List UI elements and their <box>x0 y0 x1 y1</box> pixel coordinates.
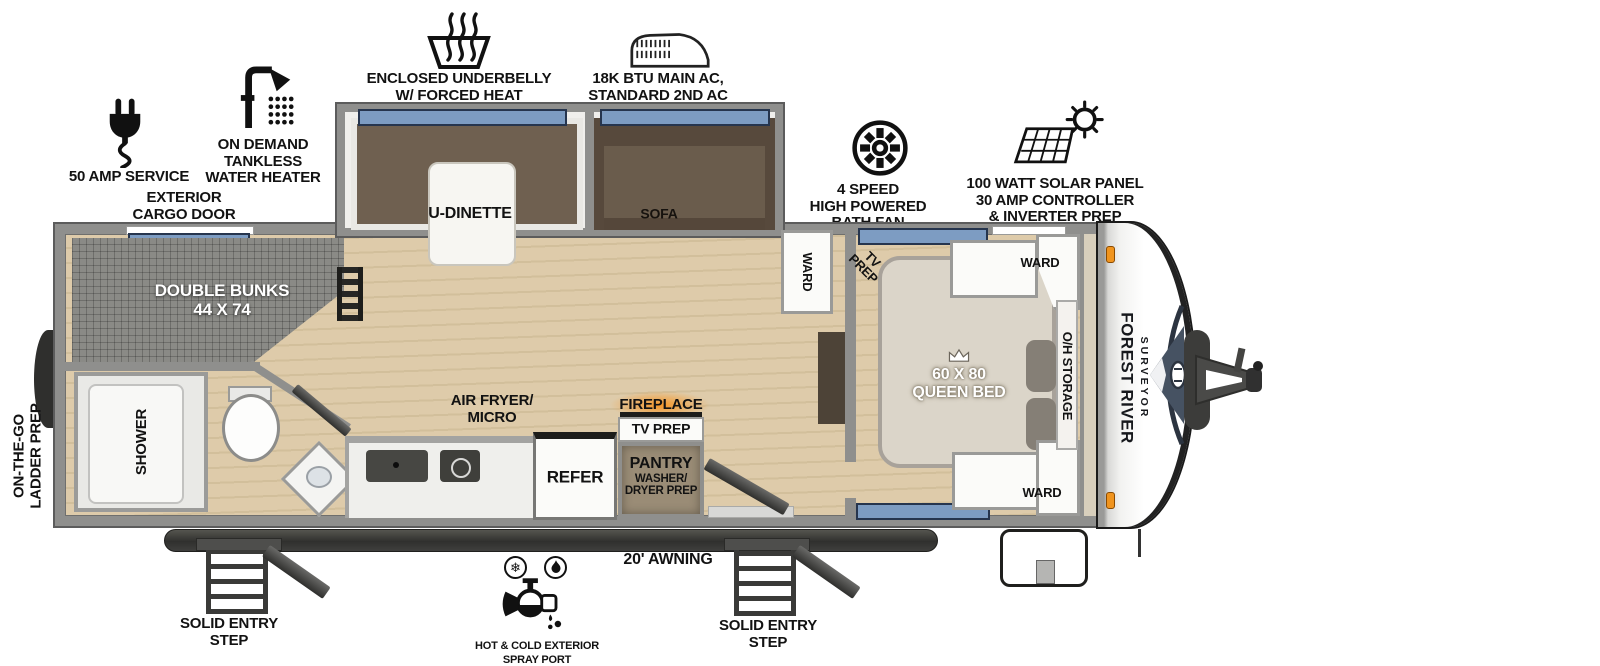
solar-panel-icon <box>1012 100 1104 174</box>
cooktop-burner <box>451 458 471 478</box>
hot-icon <box>544 556 567 579</box>
cap-support-line <box>1138 529 1141 557</box>
callout-water-heater-label: ON DEMAND TANKLESS WATER HEATER <box>183 137 343 187</box>
bath-fan-icon <box>851 119 909 177</box>
crown-icon <box>946 348 972 364</box>
bedroom-cabinet-bottom <box>952 452 1040 510</box>
ac-unit-icon <box>626 29 714 69</box>
ward-bed-bottom <box>1036 440 1080 516</box>
tv-panel <box>818 332 846 424</box>
bathroom-sink-basin <box>306 466 332 488</box>
fireplace-label: FIREPLACE <box>619 397 702 414</box>
tv-prep-main-label: TV PREP <box>632 421 691 436</box>
entry-steps-right <box>734 550 796 616</box>
entry-step-left-label: SOLID ENTRY STEP <box>149 616 309 649</box>
slideout-divider-wall <box>585 112 594 232</box>
floorplan-diagram: 50 AMP SERVICE ON DEMAND TANKLESS WATER … <box>0 0 1600 666</box>
callout-ac-label: 18K BTU MAIN AC, STANDARD 2ND AC <box>558 71 758 104</box>
dinette-window <box>358 109 567 126</box>
entry-steps-left <box>206 550 268 614</box>
toilet <box>222 394 280 462</box>
forced-heat-icon <box>424 0 494 70</box>
front-wall-marking <box>992 226 1066 235</box>
callout-solar-label: 100 WATT SOLAR PANEL 30 AMP CONTROLLER &… <box>955 176 1155 226</box>
brand-make-label: FOREST RIVER <box>1117 312 1136 444</box>
sofa-front-edge <box>604 218 765 230</box>
spray-port-icon <box>496 578 576 630</box>
air-fryer-label: AIR FRYER/ MICRO <box>412 393 572 426</box>
ward-hall-label: WARD <box>800 253 814 292</box>
cold-icon: ❄ <box>504 556 527 579</box>
bunk-ladder <box>337 267 363 321</box>
awning-label: 20' AWNING <box>588 551 748 569</box>
shower-label: SHOWER <box>134 409 151 475</box>
marker-light-bottom <box>1106 492 1115 509</box>
oh-storage-label: O/H STORAGE <box>1060 332 1074 421</box>
power-plug-icon <box>104 98 146 168</box>
hitch-assembly <box>1184 328 1264 432</box>
cargo-door-label: EXTERIOR CARGO DOOR <box>104 190 264 223</box>
spray-port-label: HOT & COLD EXTERIOR SPRAY PORT <box>447 640 627 666</box>
sofa-window <box>600 109 770 126</box>
entry-step-right-label: SOLID ENTRY STEP <box>688 618 848 651</box>
queen-bed-label: 60 X 80 QUEEN BED <box>879 366 1039 401</box>
ladder-prep-label: ON-THE-GO LADDER PREP <box>12 403 45 508</box>
ward-bed-top-label: WARD <box>1000 256 1080 270</box>
shower-head-icon <box>236 64 298 130</box>
sofa-label: SOFA <box>640 206 677 221</box>
ward-bed-bottom-label: WARD <box>1002 486 1082 500</box>
kitchen-faucet <box>393 462 399 468</box>
u-dinette-label: U-DINETTE <box>428 205 512 223</box>
callout-underbelly-label: ENCLOSED UNDERBELLY W/ FORCED HEAT <box>359 71 559 104</box>
entry-door-left <box>262 545 331 599</box>
entry-door-right <box>792 545 861 599</box>
bedroom-wall-lower <box>845 498 856 522</box>
marker-light-top <box>1106 246 1115 263</box>
bunks-label: DOUBLE BUNKS 44 X 74 <box>122 282 322 319</box>
utility-box-latch <box>1036 560 1055 584</box>
bath-wall <box>64 362 260 371</box>
